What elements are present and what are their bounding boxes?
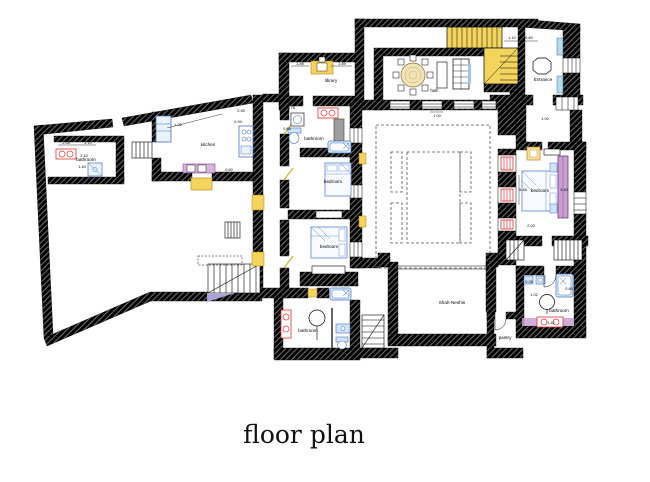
dimension-label: 0.66 <box>283 127 290 131</box>
dimension-label: 1.10 <box>84 141 91 145</box>
bench-icon <box>312 266 345 274</box>
dimension-label: 0.80 <box>525 36 532 40</box>
corridor-window-icon <box>556 97 578 110</box>
toilet-icon <box>536 276 545 284</box>
room-label-shah-neshin: Shah-Neshin <box>439 300 466 305</box>
entrance-furniture <box>533 38 563 93</box>
column-icon <box>533 58 551 74</box>
sink-icon <box>336 324 350 333</box>
dimension-label: 0.78 <box>287 106 294 110</box>
courtyard-window-icon <box>350 242 362 257</box>
dimension-label: 2.28 <box>62 141 69 145</box>
hall-window-icon <box>454 101 474 109</box>
dimension-label: 0.94 <box>234 120 241 124</box>
dimension-label: 1.74 <box>291 99 298 103</box>
door-icon <box>359 153 366 164</box>
heater-icon <box>318 108 338 118</box>
room-label-bedroom-right: bedroom <box>531 188 549 193</box>
bathtub-icon <box>328 141 351 153</box>
dimension-label: 0.44 <box>576 310 583 314</box>
dimension-label: 1.00 <box>500 127 507 131</box>
hall-window-icon <box>390 101 410 109</box>
dimension-label: 1.00 <box>433 114 440 118</box>
heater-icon <box>56 149 76 159</box>
dimension-label: 1.00 <box>500 205 507 209</box>
left-bathroom-furniture <box>56 149 102 176</box>
door-icon <box>359 216 366 227</box>
room-label-bedroom-mid1: bedroom <box>324 179 342 184</box>
shahneshin-platform-edge <box>398 266 488 269</box>
dimension-label: 1.42 <box>547 321 554 325</box>
radiator-icon <box>498 218 516 231</box>
room-label-bathroom-left: bathroom <box>76 157 96 162</box>
room-label-pantry: pantry <box>499 335 512 340</box>
dimension-label: 0.70 <box>500 113 507 117</box>
door-icon <box>252 195 264 210</box>
shower-tray-icon <box>88 163 102 176</box>
hall-window-icon <box>422 101 442 109</box>
nightstand-icon <box>550 163 557 172</box>
door-icon <box>308 289 317 297</box>
dimension-label: 1.00 <box>541 117 548 121</box>
floor-plan-drawing: 2.28 1.10 2.10 1.40 1.02 0.95 0.94 0.60 … <box>0 0 650 482</box>
dimension-label: 0.80 <box>565 287 572 291</box>
courtyard-window-icon <box>350 128 362 143</box>
closet-icon <box>316 211 342 218</box>
kitchen-table-icon <box>191 178 212 190</box>
nightstand-icon <box>550 204 557 213</box>
bed-icon <box>311 227 347 258</box>
bedroom2-furniture <box>311 211 347 274</box>
kitchen-stairs-icon <box>132 142 152 158</box>
mid-bathroom-furniture <box>288 108 351 153</box>
radiator-windows <box>498 155 516 231</box>
rug-icon <box>437 62 447 88</box>
dimension-label: 2.00 <box>527 224 534 228</box>
stove-icon <box>239 126 253 157</box>
dimension-label: 1.02 <box>530 293 537 297</box>
wing-small-stairs-icon <box>225 222 240 238</box>
bathtub-icon <box>556 274 573 297</box>
entrance-window-icon <box>563 58 580 73</box>
door-leaf-icon <box>284 168 293 180</box>
wardrobe-icon <box>558 156 568 218</box>
right-edge-stairs-icon <box>554 240 582 260</box>
room-label-kitchen: kitchen <box>201 142 216 147</box>
sink-counter-icon <box>183 164 215 173</box>
dimension-label: 1.02 <box>174 123 181 127</box>
dimension-label: 0.26 <box>525 280 532 284</box>
room-label-bathroom-bottom: bathroom <box>298 328 318 333</box>
wardrobe-icon <box>334 119 344 141</box>
room-label-hall: hall <box>430 88 437 93</box>
dimension-label: 1.89 <box>338 62 345 66</box>
radiator-icon <box>498 187 516 203</box>
heater-icon <box>281 310 291 338</box>
dimension-label: 1.89 <box>296 62 303 66</box>
door-arc-icon <box>544 275 556 287</box>
room-label-bedroom-mid2: bedroom <box>320 244 338 249</box>
shelf-icon <box>544 149 560 155</box>
bathtub-icon <box>330 288 351 300</box>
courtyard-outline <box>376 125 490 268</box>
room-label-entrance: Entrance <box>534 77 553 82</box>
cabinet-icon <box>453 59 471 89</box>
room-label-bathroom-mid: bathroom <box>304 136 324 141</box>
radiator-icon <box>498 155 516 172</box>
dimension-label: 1.40 <box>78 165 85 169</box>
dimension-label: 1.10 <box>508 36 515 40</box>
fridge-icon <box>156 116 171 142</box>
dimension-label: 0.60 <box>225 168 232 172</box>
room-label-bathroom-right: bathroom <box>549 308 569 313</box>
right-bedroom-furniture <box>522 147 568 218</box>
room-label-library2: library <box>325 78 338 83</box>
shahneshin-stairs-icon <box>362 315 384 348</box>
plan-title: floor plan <box>243 420 365 449</box>
nightstand-icon <box>527 147 540 160</box>
bedroom-window-icon <box>574 192 586 214</box>
door-leaf-icon <box>284 256 293 268</box>
hall-window-icon <box>482 101 496 109</box>
pantry-door-arc-icon <box>495 319 506 330</box>
dimension-label: 3.40 <box>560 188 567 192</box>
pantry-stairs-icon <box>506 240 524 260</box>
courtyard-window-icon <box>350 185 362 198</box>
door-icon <box>252 252 264 266</box>
bench-icon <box>557 76 563 93</box>
toilet-icon <box>336 337 348 349</box>
washer-icon <box>291 113 304 126</box>
basin-icon <box>309 310 325 340</box>
bench-icon <box>557 38 563 55</box>
dimension-label: 0.95 <box>237 109 244 113</box>
dining-table-icon <box>393 55 433 95</box>
dimension-label: 5.48 <box>519 188 526 192</box>
floor-plan-page: 2.28 1.10 2.10 1.40 1.02 0.95 0.94 0.60 … <box>0 0 650 482</box>
dimension-label: 0.44 <box>502 148 509 152</box>
